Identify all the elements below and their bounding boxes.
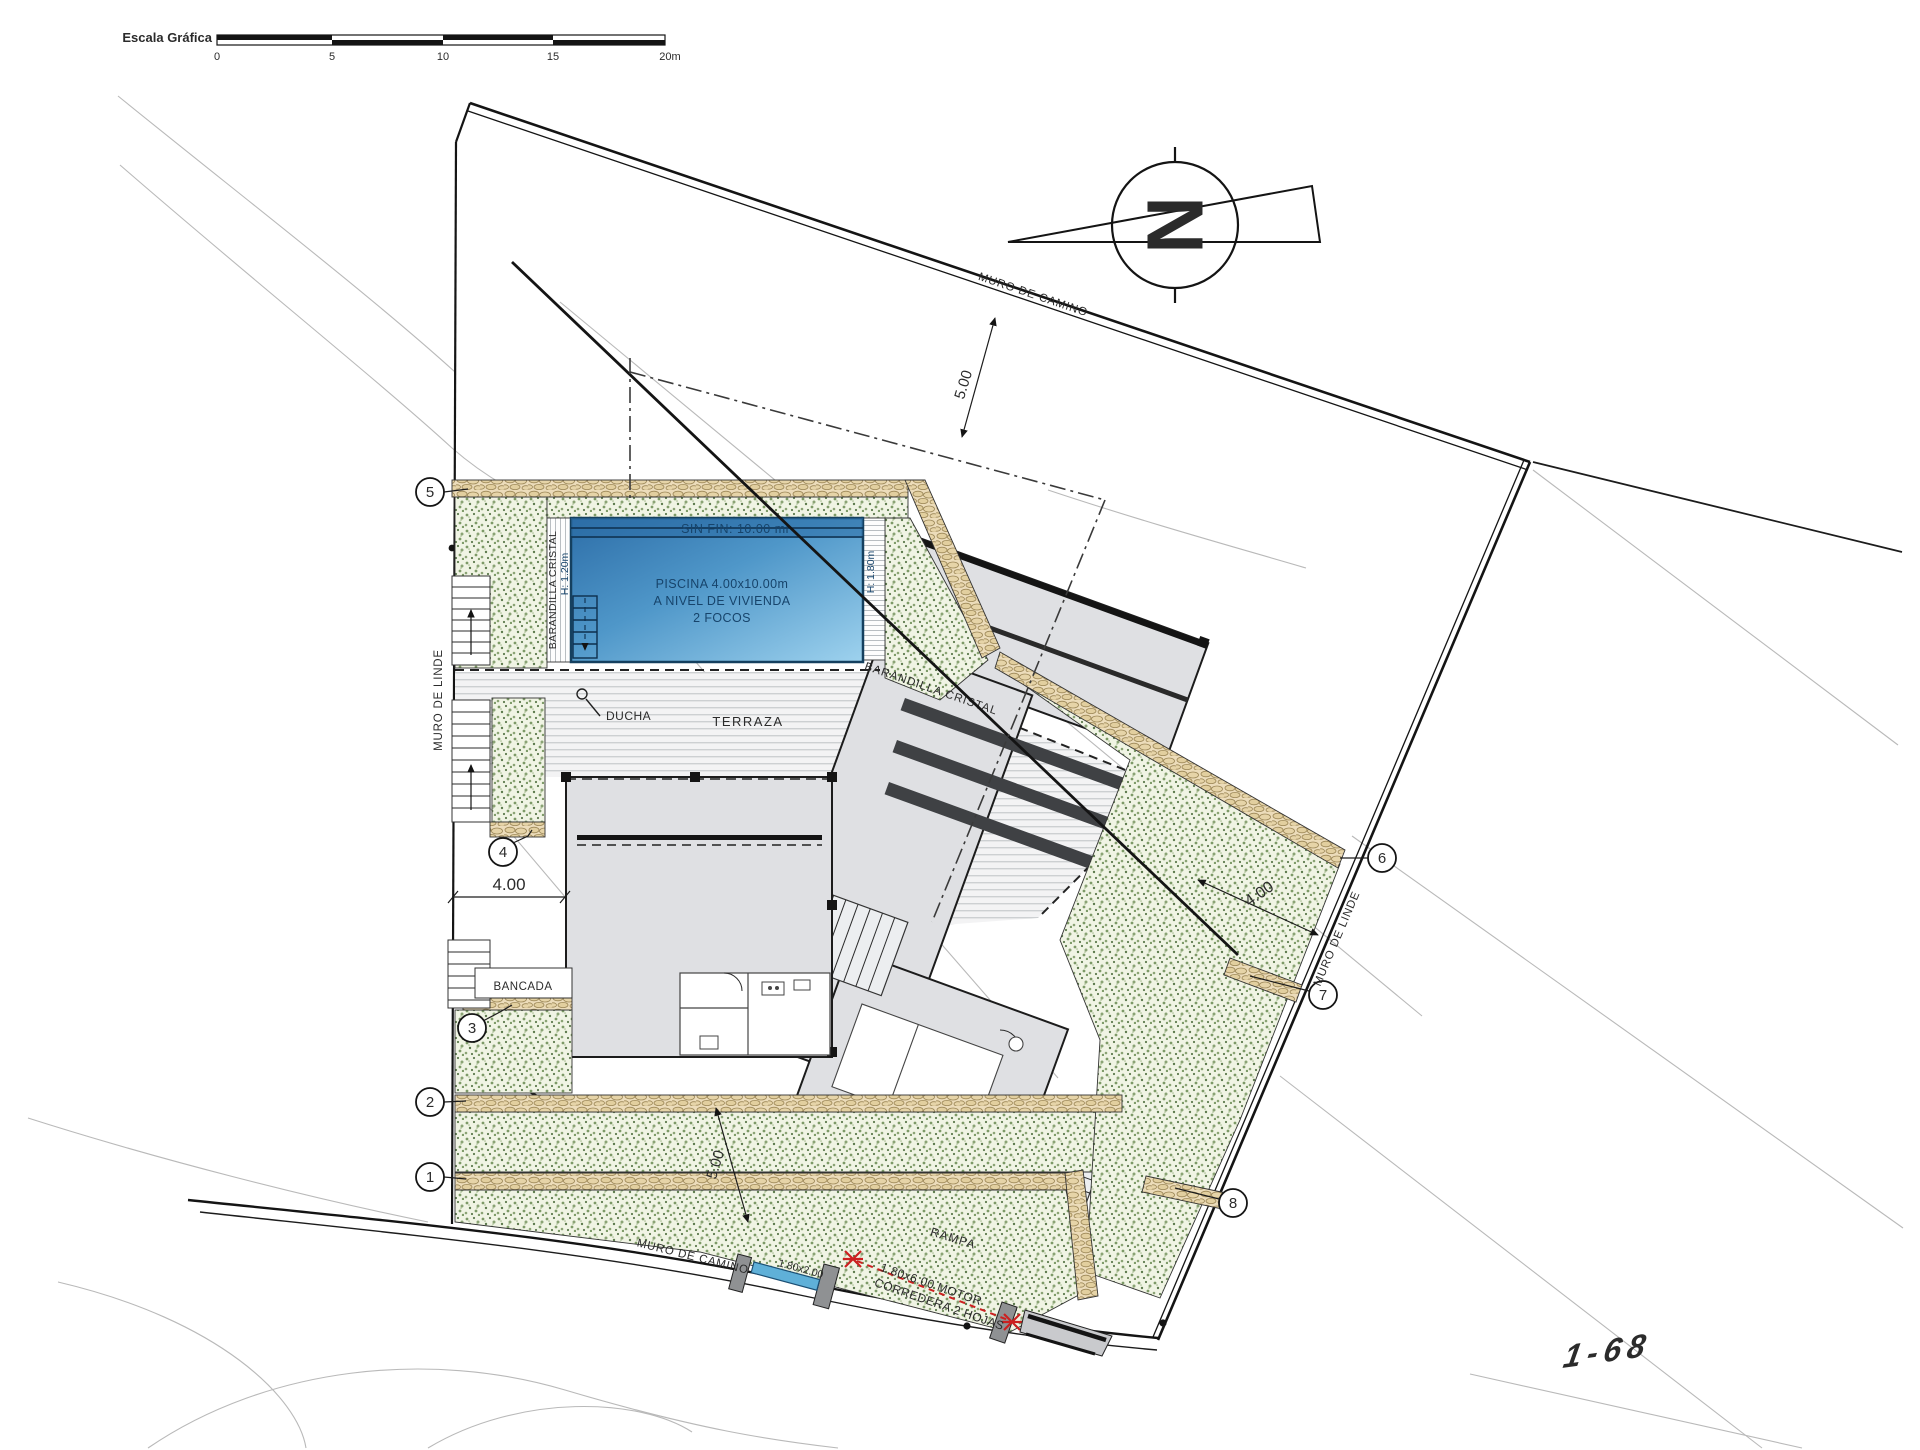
marker-4: 4 [499,844,507,861]
scale-tick-15: 15 [547,51,559,63]
pool-label-3: 2 FOCOS [693,611,751,625]
pool-label-2: A NIVEL DE VIVIENDA [653,594,790,608]
shower-label: DUCHA [606,709,651,723]
parcel-number-watermark: 1-68 [1561,1325,1655,1375]
pool-edge-label: SIN FIN: 10.00 ml [681,522,789,536]
marker-5: 5 [426,484,434,501]
marker-7: 7 [1319,987,1327,1004]
scale-tick-0: 0 [214,51,220,63]
north-letter: N [1131,196,1220,254]
dim-left: 4.00 [492,875,525,894]
house-main [561,772,837,1057]
house-interior-rooms [680,973,830,1055]
scale-tick-5: 5 [329,51,335,63]
dim-top: 5.00 [951,368,976,401]
muro-camino-top-label: MURO DE CAMINO [977,271,1089,319]
marker-1: 1 [426,1169,434,1186]
muro-linde-left-label: MURO DE LINDE [433,649,445,751]
rail-left-height: H: 1.20m [559,552,571,595]
boundary-stairs [448,576,490,1008]
outer-fence-line [1533,462,1902,552]
site-plan-canvas: BANCADA SIN FIN: 10.00 ml PISCINA 4.00x1… [0,0,1920,1450]
scale-bar: Escala Gráfica 0 5 10 15 20m [122,30,680,63]
bancada-label: BANCADA [493,981,552,993]
scale-bar-title: Escala Gráfica [122,30,212,45]
scale-tick-10: 10 [437,51,449,63]
scale-tick-20: 20m [659,51,680,63]
marker-8: 8 [1229,1195,1237,1212]
pool-label-1: PISCINA 4.00x10.00m [656,577,789,591]
rail-right-height: H: 1.80m [865,550,877,593]
marker-3: 3 [468,1020,476,1037]
north-symbol: N [1008,147,1320,303]
terrace-label: TERRAZA [712,714,783,729]
rail-left-label: BARANDILLA CRISTAL [547,531,559,649]
marker-2: 2 [426,1094,434,1111]
bench-bancada: BANCADA [475,968,572,998]
marker-6: 6 [1378,850,1386,867]
